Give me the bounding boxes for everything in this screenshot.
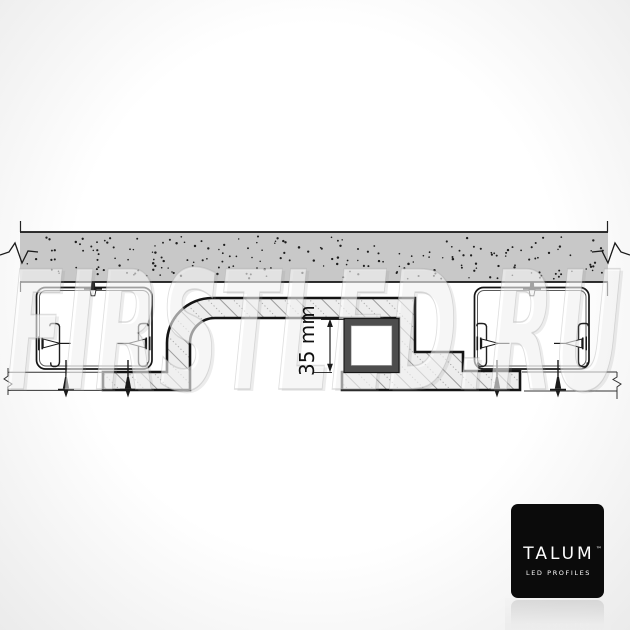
trademark-icon: ™ [596,541,602,558]
arrow-up-icon [327,319,333,327]
concrete-stipple [27,235,604,279]
break-zigzag-icon [592,243,630,263]
concrete-slab [0,221,630,296]
side-screw-icon [554,337,586,351]
led-profile-section [344,319,399,373]
logo-brand-text: TALUM™ [523,546,594,563]
break-zigzag-icon [0,243,38,263]
channel-section-right [475,288,590,370]
drywall-screw-icon [120,360,136,398]
clip-bracket-icon [579,324,589,367]
side-screw-icon [118,337,150,351]
clip-bracket-icon [50,324,60,367]
channel-section-left [37,288,153,370]
drywall-break-lines-right [522,372,621,399]
break-zigzag-icon [4,368,12,395]
drywall-screw-icon [58,360,74,398]
logo-subtitle: LED PROFILES [526,569,591,577]
drywall-screw-icon [489,360,505,398]
dimension-label: 35 mm [296,314,318,376]
anchor-screw-icon [84,258,102,296]
drywall-screw-icon [550,360,566,398]
reflection-fade [505,598,611,630]
clip-bracket-icon [477,324,487,367]
side-screw-icon [477,337,509,351]
side-screw-icon [39,337,71,351]
arrow-down-icon [327,364,333,372]
break-zigzag-icon [613,372,621,399]
clip-bracket-icon [139,324,149,367]
talum-logo: TALUM™ LED PROFILES [511,504,604,598]
anchor-screw-icon [523,258,541,296]
technical-drawing-canvas: FIRSTLED.RU FIRSTLED.RU 35 mm TALUM™ LED… [0,0,630,630]
drywall-break-lines-left [4,368,103,395]
